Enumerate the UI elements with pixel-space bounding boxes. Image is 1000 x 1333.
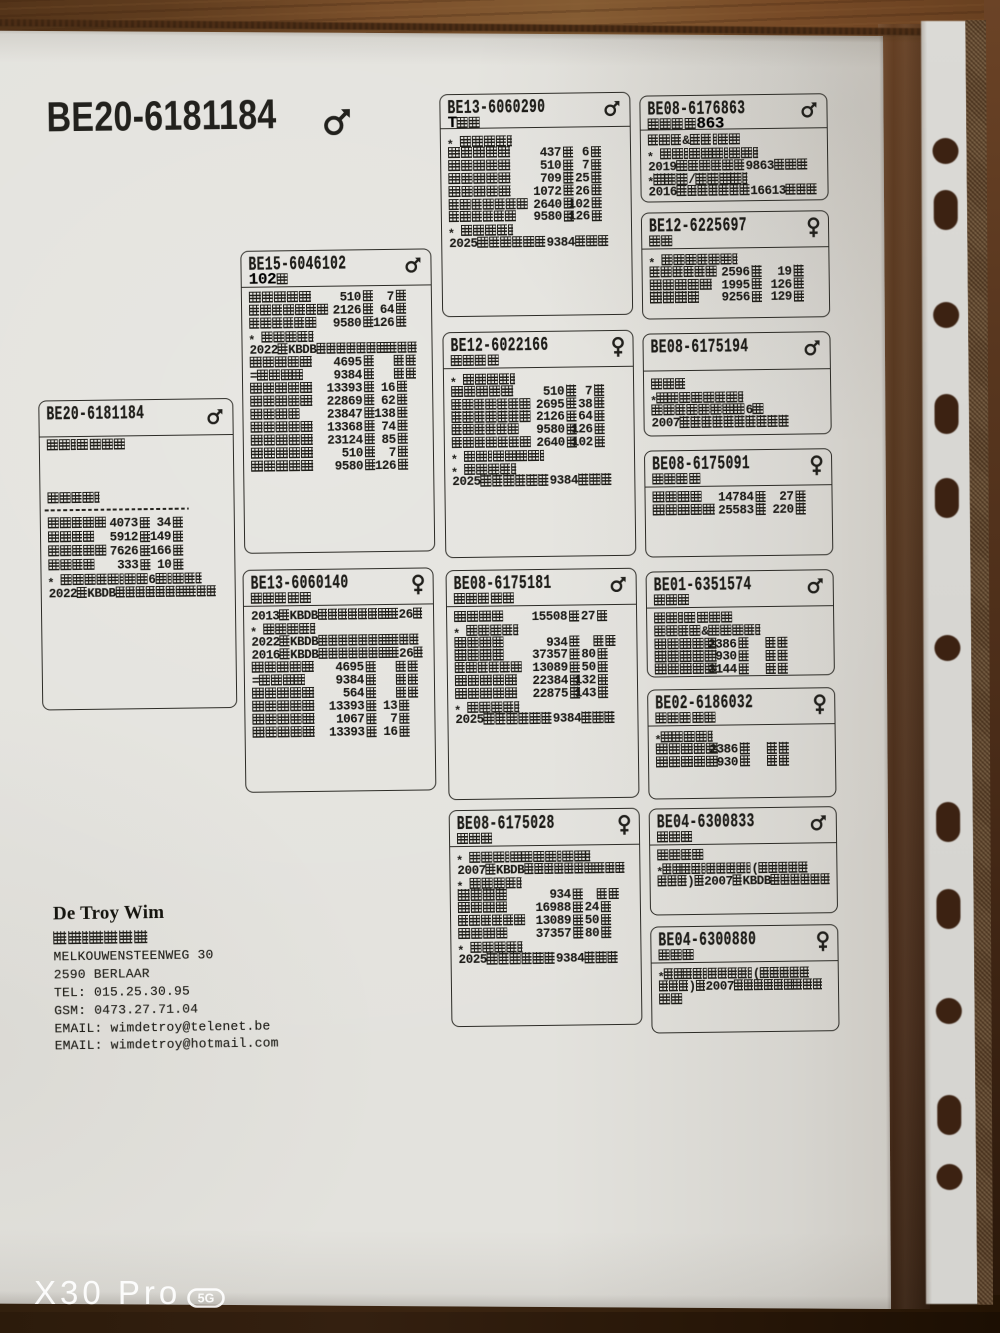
svg-text:5G: 5G [198, 1292, 215, 1306]
